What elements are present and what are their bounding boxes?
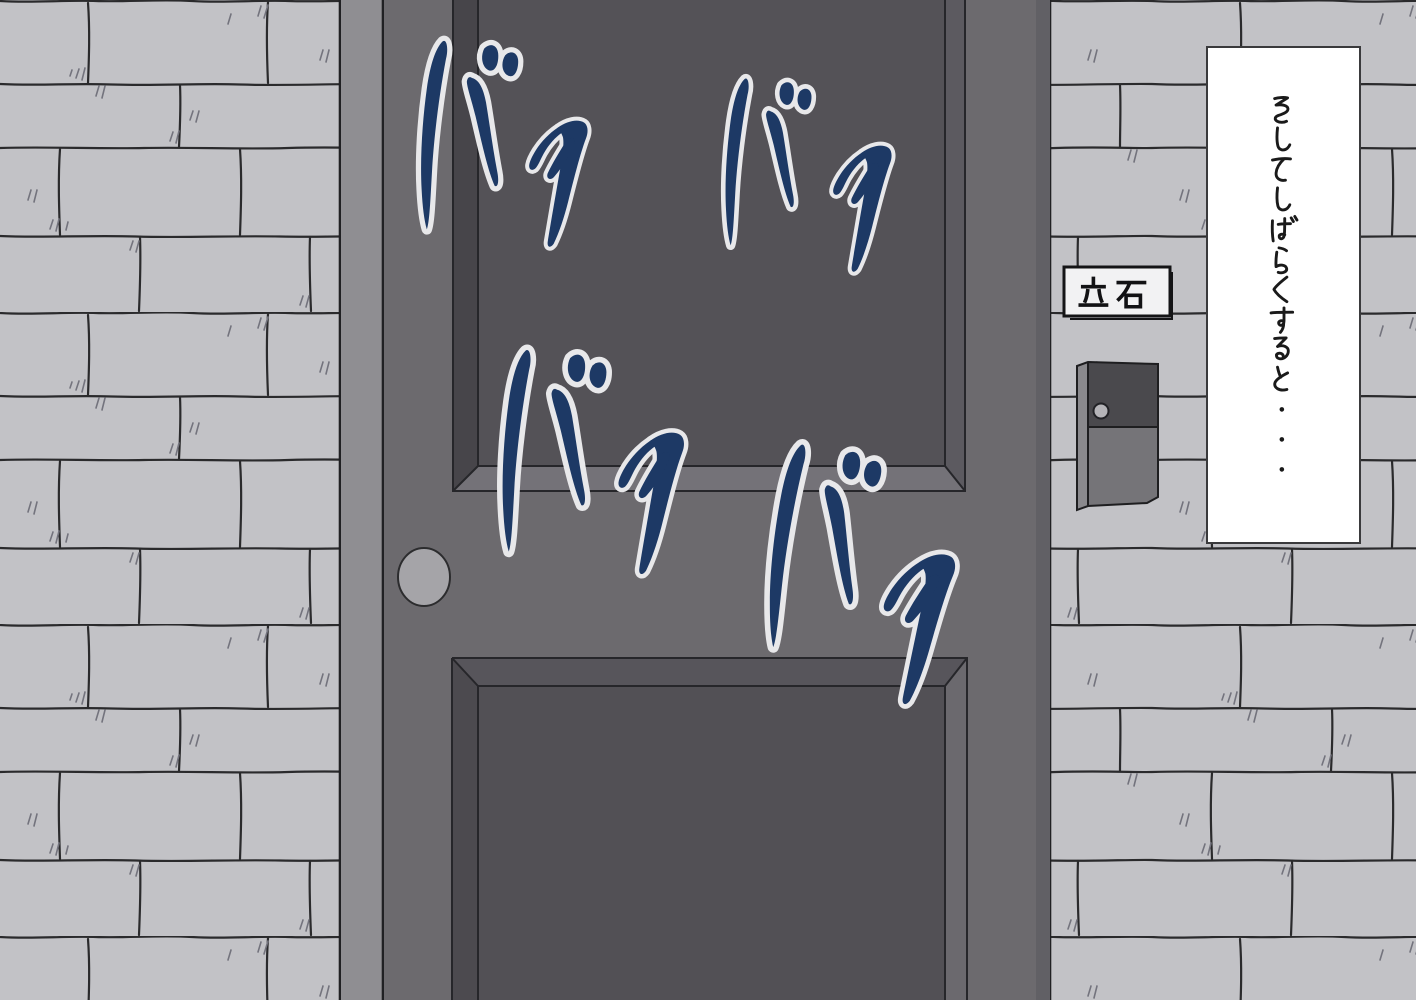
- door-bottom-panel: [452, 658, 967, 1000]
- door-frame: [341, 0, 383, 1000]
- doorbell-intercom: [1077, 362, 1158, 510]
- door-knob: [398, 548, 450, 606]
- left-brick-wall: [0, 0, 341, 1000]
- narration-box: [1207, 47, 1360, 543]
- nameplate: [1064, 267, 1172, 319]
- door-window-panel: [453, 0, 965, 491]
- comic-panel: そしてしばらくすると・・・ 立石 バタ バタ バタ バタ: [0, 0, 1416, 1000]
- doorbell-button: [1094, 404, 1109, 419]
